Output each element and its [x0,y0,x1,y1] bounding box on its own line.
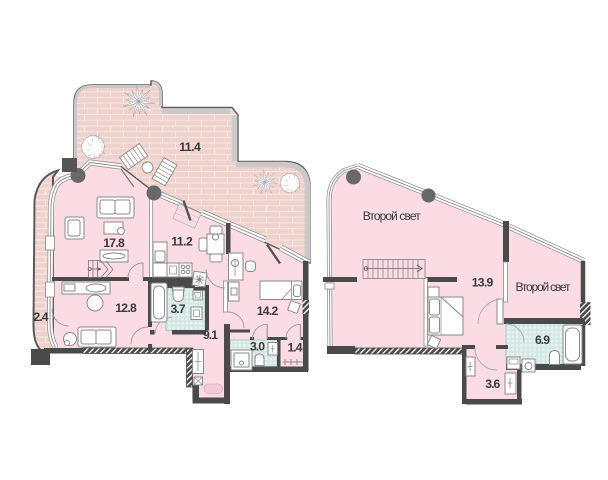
svg-text:2.4: 2.4 [34,310,49,324]
svg-text:Второй свет: Второй свет [363,209,422,223]
svg-text:6.9: 6.9 [535,333,550,347]
svg-text:13.9: 13.9 [472,275,494,289]
svg-text:11.2: 11.2 [171,235,193,249]
svg-text:11.4: 11.4 [179,140,201,154]
svg-text:Второй свет: Второй свет [516,280,572,294]
svg-text:17.8: 17.8 [103,236,125,250]
svg-text:12.8: 12.8 [115,301,137,315]
svg-text:3.6: 3.6 [485,377,500,391]
svg-text:1.4: 1.4 [288,340,303,354]
svg-text:9.1: 9.1 [203,328,218,342]
svg-text:3.7: 3.7 [171,302,186,316]
svg-text:3.0: 3.0 [250,339,265,353]
svg-text:14.2: 14.2 [257,304,279,318]
